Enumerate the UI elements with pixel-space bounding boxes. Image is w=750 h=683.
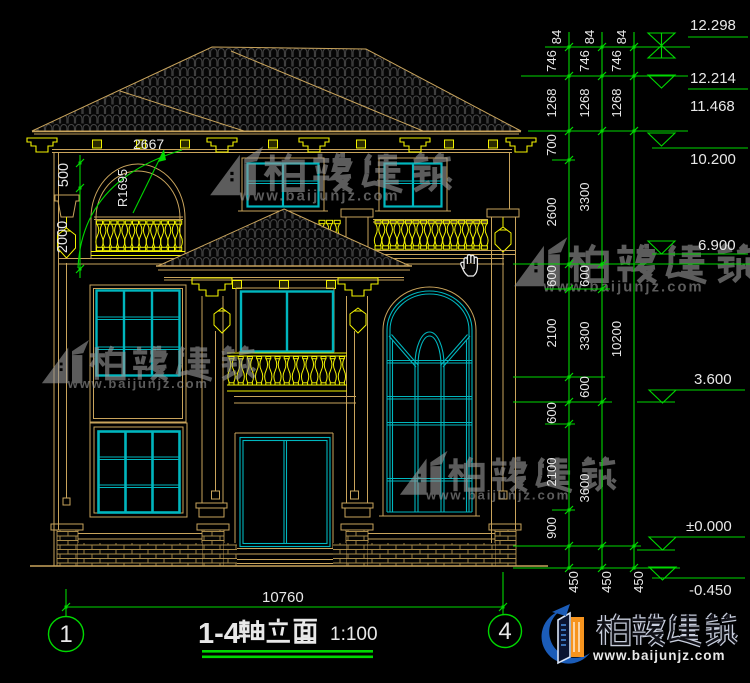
svg-text:3300: 3300 [577,183,592,212]
svg-text:600: 600 [577,376,592,398]
svg-text:84: 84 [614,30,629,44]
svg-text:1268: 1268 [577,89,592,118]
svg-text:600: 600 [544,265,559,287]
svg-text:84: 84 [582,30,597,44]
svg-text:3.600: 3.600 [694,371,732,388]
svg-text:4: 4 [498,618,511,645]
svg-text:3300: 3300 [577,322,592,351]
svg-text:84: 84 [549,30,564,44]
svg-text:11.468: 11.468 [690,98,735,115]
svg-text:1268: 1268 [544,89,559,118]
svg-text:450: 450 [599,571,614,593]
svg-text:1:100: 1:100 [330,624,378,645]
svg-text:2100: 2100 [544,458,559,487]
svg-text:2000: 2000 [55,221,71,253]
svg-text:www.baijunjz.com: www.baijunjz.com [425,487,570,502]
svg-text:R1695: R1695 [115,169,130,207]
svg-text:450: 450 [566,571,581,593]
svg-text:1268: 1268 [609,89,624,118]
svg-text:1-4: 1-4 [198,618,240,650]
svg-text:2600: 2600 [544,198,559,227]
svg-text:±0.000: ±0.000 [686,518,732,535]
svg-text:-0.450: -0.450 [689,582,732,599]
svg-text:3600: 3600 [577,474,592,503]
svg-text:500: 500 [56,163,72,187]
svg-text:www.baijunjz.com: www.baijunjz.com [67,376,209,391]
svg-text:www.baijunjz.com: www.baijunjz.com [592,648,726,663]
svg-text:6.900: 6.900 [698,237,736,254]
svg-text:10.200: 10.200 [690,151,736,168]
svg-text:www.baijunjz.com: www.baijunjz.com [542,279,703,295]
svg-text:12.298: 12.298 [690,17,736,34]
svg-text:1: 1 [59,621,72,648]
svg-text:746: 746 [609,50,624,72]
svg-text:746: 746 [577,50,592,72]
svg-text:746: 746 [544,50,559,72]
svg-text:450: 450 [631,571,646,593]
svg-text:www.baijunjz.com: www.baijunjz.com [238,188,399,204]
svg-text:10760: 10760 [262,589,304,606]
svg-text:10200: 10200 [609,321,624,357]
svg-text:900: 900 [544,517,559,539]
svg-text:600: 600 [577,265,592,287]
svg-text:600: 600 [544,402,559,424]
svg-text:2100: 2100 [544,319,559,348]
svg-text:12.214: 12.214 [690,70,736,87]
svg-text:700: 700 [544,134,559,156]
svg-text:2667: 2667 [133,136,164,152]
